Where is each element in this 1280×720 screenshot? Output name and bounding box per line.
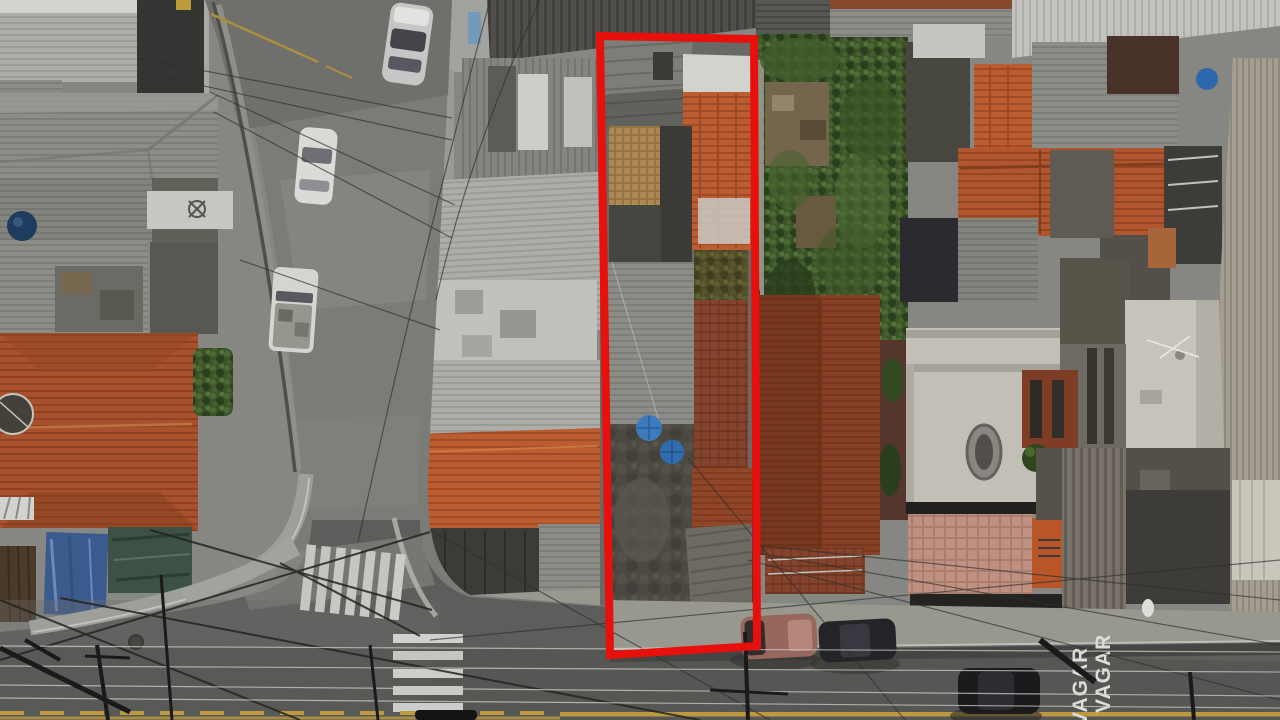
svg-text:VAGAR: VAGAR: [1069, 647, 1092, 720]
svg-text:VAGAR: VAGAR: [1092, 634, 1115, 713]
